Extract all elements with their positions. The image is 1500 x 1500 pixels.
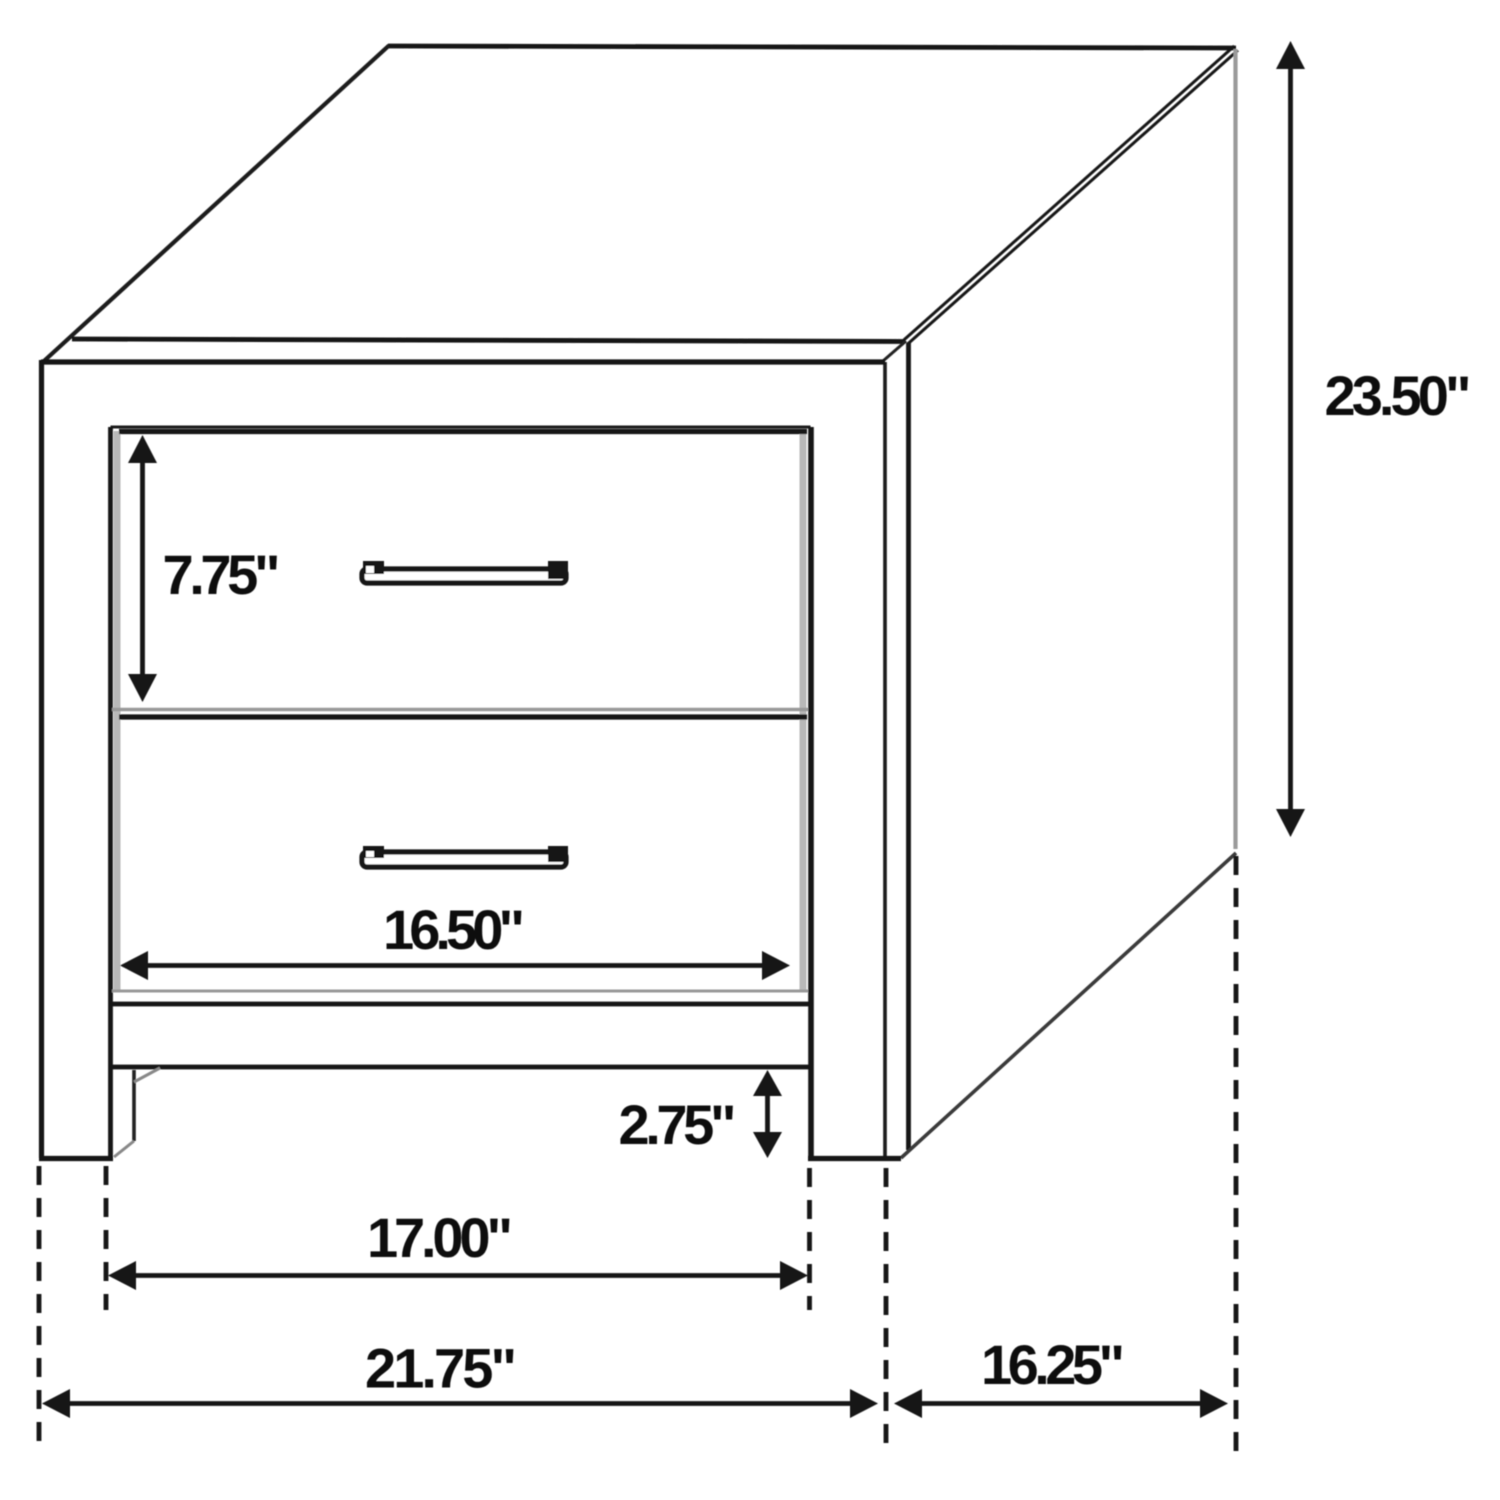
- svg-text:7.75": 7.75": [163, 543, 281, 606]
- svg-text:16.50": 16.50": [383, 898, 525, 961]
- svg-text:21.75": 21.75": [365, 1337, 517, 1400]
- svg-text:16.25": 16.25": [981, 1333, 1125, 1396]
- svg-text:2.75": 2.75": [619, 1093, 737, 1156]
- svg-text:17.00": 17.00": [367, 1206, 513, 1269]
- svg-text:23.50": 23.50": [1325, 364, 1472, 427]
